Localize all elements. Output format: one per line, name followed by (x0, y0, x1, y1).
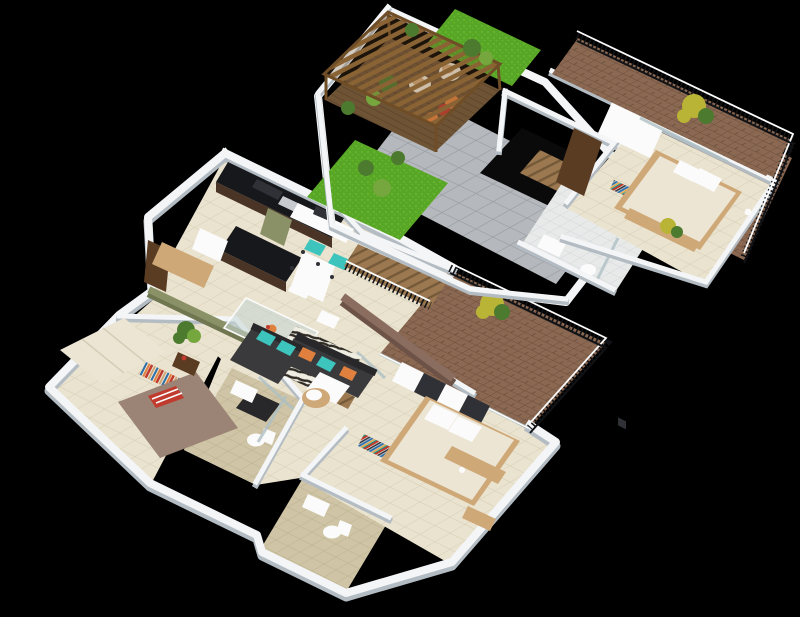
floorplan-render (0, 0, 800, 617)
floor-decor-dot (330, 275, 334, 279)
floorplan-svg (0, 0, 800, 617)
pergola-post (498, 64, 500, 90)
floor-decor-dot (316, 262, 320, 266)
nightstand (745, 209, 752, 216)
dresser-decor (182, 356, 187, 361)
bed-lamp (459, 467, 465, 473)
fruit (266, 325, 270, 329)
floor-decor-dot (290, 266, 294, 270)
floor-decor-dot (301, 250, 305, 254)
